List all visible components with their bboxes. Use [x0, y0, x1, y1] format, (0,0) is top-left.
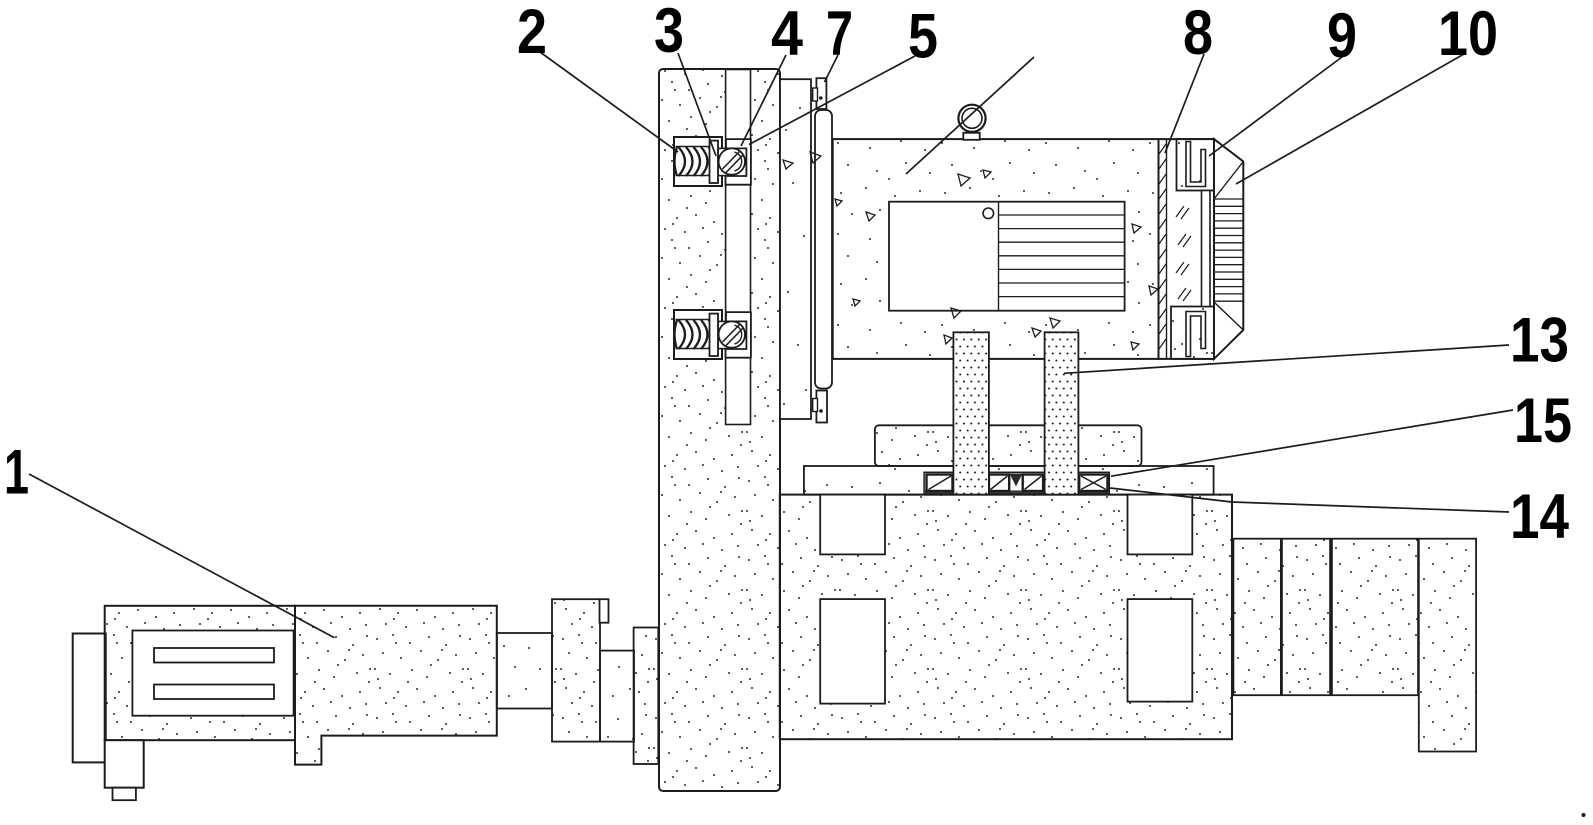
svg-text:1: 1 [4, 438, 29, 508]
svg-text:15: 15 [1514, 386, 1572, 456]
svg-text:10: 10 [1438, 0, 1498, 69]
svg-text:2: 2 [517, 0, 547, 67]
svg-text:4: 4 [771, 0, 803, 69]
svg-text:5: 5 [908, 2, 938, 72]
svg-text:8: 8 [1183, 0, 1213, 68]
svg-text:7: 7 [826, 0, 853, 69]
svg-text:3: 3 [654, 0, 684, 66]
svg-text:9: 9 [1327, 1, 1357, 71]
svg-text:14: 14 [1510, 482, 1569, 552]
svg-text:13: 13 [1510, 306, 1569, 376]
